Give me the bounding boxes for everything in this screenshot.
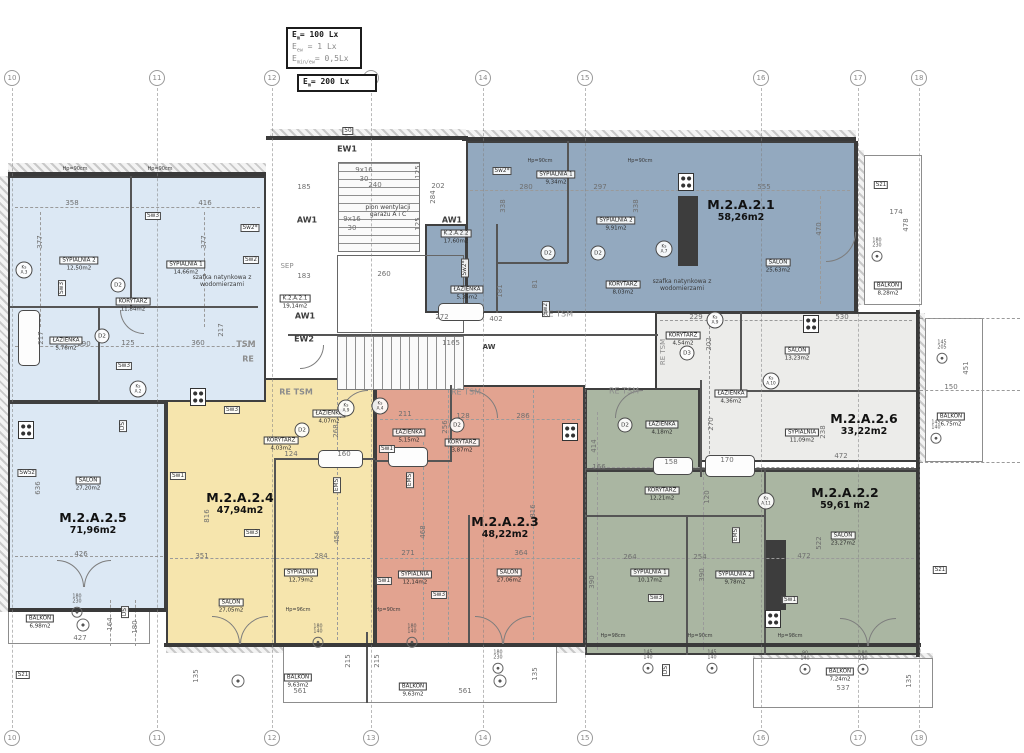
room-area: 27,05m2 xyxy=(219,608,244,614)
room-name: SALON xyxy=(831,532,856,540)
interior-wall xyxy=(498,262,568,264)
room-label: ŁAZIENKA5,15m2 xyxy=(392,419,425,444)
room-label: KORYTARZ3,87m2 xyxy=(445,429,480,454)
apartment-title-M.2.A.2.5: M.2.A.2.571,96m2 xyxy=(59,510,126,536)
grid-axis-bubble: 11 xyxy=(149,70,165,86)
apartment-id: M.2.A.2.5 xyxy=(59,510,126,525)
annotation: Hp=90cm xyxy=(147,167,172,173)
dim-label: 202 xyxy=(705,337,713,350)
dim-label: 522 xyxy=(815,536,823,549)
dash-line xyxy=(380,558,580,559)
apartment-id: M.2.A.2.4 xyxy=(206,490,273,505)
apartment-title-M.2.A.2.1: M.2.A.2.158,26m2 xyxy=(707,197,774,223)
fixture-stamp-Sw1: Sw1 xyxy=(379,445,395,453)
balcony-name: BALKON xyxy=(937,413,965,421)
dim-label: 181 xyxy=(496,284,504,297)
apartment-area: 33,22m2 xyxy=(830,426,897,437)
room-area: 11,84m2 xyxy=(116,307,151,313)
balcony-label: BALKON6,75m2 xyxy=(937,403,965,428)
dim-label: 390 xyxy=(588,575,596,588)
vent-stamp-ref: A.10 xyxy=(766,381,775,385)
fixture-stamp-DS: DS xyxy=(119,420,127,432)
room-label: SALON23,27m2 xyxy=(831,522,856,547)
room-name: ŁAZIENKA xyxy=(49,337,82,345)
wall xyxy=(266,136,468,140)
room-area: 3,87m2 xyxy=(445,448,480,454)
room-name: SYPIALNIA xyxy=(785,429,819,437)
staircase-label: K.2.A.2.119,14m2 xyxy=(280,285,311,310)
apartment-area: 71,96m2 xyxy=(59,525,126,536)
dim-label: 537 xyxy=(836,684,849,692)
balcony-area: 8,28m2 xyxy=(874,291,902,297)
grid-axis-bubble: 15 xyxy=(577,70,593,86)
survey-point-icon xyxy=(494,675,507,688)
room-name: ŁAZIENKA xyxy=(450,286,483,294)
survey-point-icon xyxy=(313,636,324,647)
floor-plan-drawing: Em= 100 Lx Eew = 1 Lx Emin/ew= 0,5Lx Em=… xyxy=(0,0,1024,753)
fixture-stamp-50: 50 xyxy=(342,127,353,135)
annotation: szafka natynkowa z wodomierzami xyxy=(653,279,712,293)
annotation: szafka natynkowa z wodomierzami xyxy=(193,275,252,289)
room-name: SYPIALNIA 2 xyxy=(715,571,754,579)
dim-label: 377 xyxy=(200,235,208,248)
dim-label: 150 xyxy=(944,383,957,391)
annotation: AW1 xyxy=(442,215,462,224)
annotation: RE TSM xyxy=(543,309,573,318)
room-label: SYPIALNIA 114,66m2 xyxy=(166,251,205,276)
balcony-label: BALKON6,98m2 xyxy=(26,605,54,630)
dim-label: 297 xyxy=(593,183,606,191)
apartment-area: 47,94m2 xyxy=(206,505,273,516)
balcony-area: 7,24m2 xyxy=(826,677,854,683)
room-area: 4,18m2 xyxy=(645,430,678,436)
balcony-area: 9,63m2 xyxy=(399,692,427,698)
room-area: 10,17m2 xyxy=(630,578,669,584)
dash-line xyxy=(40,212,41,327)
dim-label: 215 xyxy=(344,654,352,667)
annotation: pion wentylacji garażu A i C xyxy=(365,205,410,219)
dash-line xyxy=(820,196,821,304)
dim-label: 135 xyxy=(531,667,539,680)
room-label: KORYTARZ4,54m2 xyxy=(666,322,701,347)
dim-label: 211 xyxy=(398,410,411,418)
survey-point-icon xyxy=(72,606,83,617)
fixture-stamp-Sw3: Sw3 xyxy=(224,406,240,414)
window-stamp: 180230 xyxy=(872,239,883,262)
room-area: 4,03m2 xyxy=(264,446,299,452)
fixture-stamp-Sw3: Sw3 xyxy=(116,362,132,370)
dim-label: 286 xyxy=(516,412,529,420)
fixture-stamp-Sw2: Sw2 xyxy=(243,256,259,264)
fixture-stamp-Sw2*: Sw2* xyxy=(492,167,511,175)
annotation: EW2 xyxy=(294,334,314,343)
annotation: Hp=90cm xyxy=(375,608,400,614)
room-area: 27,20m2 xyxy=(76,486,101,492)
dim-label: 358 xyxy=(65,199,78,207)
room-label: ŁAZIENKA5,35m2 xyxy=(450,276,483,301)
survey-point-icon xyxy=(858,663,869,674)
dim-label: 280 xyxy=(519,183,532,191)
window-stamp: 145140 xyxy=(707,651,718,674)
dim-label: 30 xyxy=(348,224,357,232)
room-area: 12,14m2 xyxy=(398,580,432,586)
room-name: KORYTARZ xyxy=(445,439,480,447)
annotation: EW1 xyxy=(337,144,357,153)
dim-label: 451 xyxy=(962,361,970,374)
apartment-id: M.2.A.2.3 xyxy=(471,514,538,529)
dim-label: 81 xyxy=(531,280,539,289)
vent-stamp-ref: A.7 xyxy=(661,249,668,253)
room-name: KORYTARZ xyxy=(666,332,701,340)
room-name: SALON xyxy=(785,347,810,355)
dim-label: 30 xyxy=(360,175,369,183)
vent-stamp: KsA.3 xyxy=(16,262,33,279)
interior-wall xyxy=(274,458,276,647)
room-name: SALON xyxy=(497,569,522,577)
interior-wall xyxy=(98,308,100,402)
grid-axis-bubble: 11 xyxy=(149,730,165,746)
balcony-label: BALKON8,28m2 xyxy=(874,272,902,297)
dim-label: 180 xyxy=(131,620,139,633)
staircase-area: 19,14m2 xyxy=(280,304,311,310)
wall-hatch xyxy=(0,176,8,612)
vent-stamp: KsA.9 xyxy=(338,400,355,417)
survey-point-icon xyxy=(937,352,948,363)
grid-axis-bubble: 10 xyxy=(4,730,20,746)
room-label: SALON13,23m2 xyxy=(785,337,810,362)
room-label: SYPIALNIA 29,91m2 xyxy=(596,207,635,232)
staircase-area: 17,60m2 xyxy=(441,239,472,245)
dim-label: 414 xyxy=(590,439,598,452)
annotation: AW1 xyxy=(297,215,317,224)
grid-axis-bubble: 14 xyxy=(475,70,491,86)
grid-axis-bubble: 10 xyxy=(4,70,20,86)
legend-row-2: Eew = 1 Lx xyxy=(292,42,356,54)
fixture-stamp-EMS: EMS xyxy=(732,527,740,543)
dash-line xyxy=(920,318,1020,319)
annotation: RE TSM xyxy=(609,386,639,395)
vent-stamp-ref: A.9 xyxy=(343,408,350,412)
room-label: ŁAZIENKA5,76m2 xyxy=(49,327,82,352)
room-name: ŁAZIENKA xyxy=(645,421,678,429)
fixture-stamp-Sw3: Sw3 xyxy=(145,212,161,220)
grid-axis-bubble: 17 xyxy=(850,730,866,746)
dim-label: 268 xyxy=(332,424,340,437)
fixture-stamp-Sw2*: Sw2* xyxy=(240,224,259,232)
dash-line xyxy=(920,390,1020,391)
dim-label: 426 xyxy=(74,550,87,558)
dim-label: 377 xyxy=(36,235,44,248)
fixture-stamp-EMS: EMS xyxy=(333,477,341,493)
dim-label: 555 xyxy=(757,183,770,191)
apartment-title-M.2.A.2.6: M.2.A.2.633,22m2 xyxy=(830,411,897,437)
room-name: SALON xyxy=(219,599,244,607)
fixture-stamp-EMS: EMS xyxy=(406,472,414,488)
dim-label: 174 xyxy=(889,208,902,216)
window-stamp: 145205 xyxy=(937,341,948,364)
annotation: RE xyxy=(242,354,254,363)
balcony-area: 6,75m2 xyxy=(937,422,965,428)
window-stamp: 180230 xyxy=(72,595,83,618)
dim-label: 229 xyxy=(689,313,702,321)
dim-label: 1165 xyxy=(442,339,460,347)
room-name: SYPIALNIA 1 xyxy=(630,569,669,577)
grid-axis-bubble: 18 xyxy=(911,70,927,86)
room-label: SYPIALNIA 212,50m2 xyxy=(59,247,98,272)
door-stamp-D2: D2 xyxy=(450,418,465,433)
balcony-name: BALKON xyxy=(284,674,312,682)
window-height: 230 xyxy=(493,656,504,661)
apartment-id: M.2.A.2.2 xyxy=(811,485,878,500)
dim-label: 217 xyxy=(217,323,225,336)
fixture-stamp-Sw1: Sw1 xyxy=(782,596,798,604)
annotation: Hp=98cm xyxy=(600,634,625,640)
dim-label: 270 xyxy=(707,417,715,430)
apartment-id: M.2.A.2.6 xyxy=(830,411,897,426)
fixture-stamp-Sw3: Sw3 xyxy=(58,280,66,296)
room-area: 4,07m2 xyxy=(312,419,345,425)
room-area: 9,34m2 xyxy=(536,180,575,186)
dash-line xyxy=(15,556,163,557)
door-arc xyxy=(300,345,324,369)
balcony-name: BALKON xyxy=(399,683,427,691)
room-label: KORYTARZ8,03m2 xyxy=(606,271,641,296)
vent-stamp-ref: A.11 xyxy=(761,501,770,505)
wall xyxy=(8,172,266,176)
legend-box-interior: Em= 100 Lx Eew = 1 Lx Emin/ew= 0,5Lx xyxy=(286,27,362,69)
grid-axis-bubble: 12 xyxy=(264,70,280,86)
room-name: SYPIALNIA 1 xyxy=(536,171,575,179)
room-area: 12,50m2 xyxy=(59,266,98,272)
dim-label: 364 xyxy=(514,549,527,557)
vent-stamp-ref: A.3 xyxy=(21,270,28,274)
dash-line xyxy=(15,207,260,208)
wall xyxy=(164,643,921,647)
grid-line xyxy=(919,88,920,728)
dim-label: 135 xyxy=(905,674,913,687)
balcony-label: BALKON9,63m2 xyxy=(284,664,312,689)
grid-line xyxy=(272,88,273,728)
stove-icon xyxy=(803,315,819,333)
room-label: SYPIALNIA 29,78m2 xyxy=(715,561,754,586)
room-name: KORYTARZ xyxy=(116,298,151,306)
vent-stamp: KsA.2 xyxy=(130,381,147,398)
room-label: SYPIALNIA12,79m2 xyxy=(284,559,318,584)
window-height: 140 xyxy=(643,656,654,661)
annotation: Hp=90cm xyxy=(627,159,652,165)
dim-label: 456 xyxy=(333,530,341,543)
interior-wall xyxy=(740,390,920,392)
dim-label: 390 xyxy=(698,568,706,581)
dim-label: 185 xyxy=(297,183,310,191)
dim-label: 170 xyxy=(720,456,733,464)
room-name: SYPIALNIA xyxy=(398,571,432,579)
grid-line xyxy=(12,88,13,728)
room-name: ŁAZIENKA xyxy=(714,390,747,398)
stove-icon xyxy=(765,610,781,628)
room-area: 9,91m2 xyxy=(596,226,635,232)
dim-label: 472 xyxy=(834,452,847,460)
window-stamp: 180140 xyxy=(313,625,324,648)
room-area: 5,15m2 xyxy=(392,438,425,444)
legend-row-1: Em= 100 Lx xyxy=(292,30,356,42)
grid-axis-bubble: 15 xyxy=(577,730,593,746)
annotation: Hp=90cm xyxy=(687,634,712,640)
window-stamp: 145140 xyxy=(643,651,654,674)
interior-wall xyxy=(130,176,132,306)
staircase-id: K.2.A.2.2 xyxy=(441,230,472,238)
door-stamp-D2: D2 xyxy=(111,278,126,293)
dim-label: 240 xyxy=(368,181,381,189)
legend-row-4: Em= 200 Lx xyxy=(303,77,371,89)
grid-axis-bubble: 16 xyxy=(753,730,769,746)
room-label: SYPIALNIA11,09m2 xyxy=(785,419,819,444)
fixture-stamp-Sw2*: Sw2* xyxy=(461,258,469,277)
vent-stamp-ref: A.9 xyxy=(712,320,719,324)
room-area: 12,21m2 xyxy=(645,496,680,502)
dash-line xyxy=(423,442,424,640)
balcony-name: BALKON xyxy=(26,615,54,623)
apartment-title-M.2.A.2.2: M.2.A.2.259,61 m2 xyxy=(811,485,878,511)
room-name: SYPIALNIA xyxy=(284,569,318,577)
door-stamp-D3: D3 xyxy=(680,346,695,361)
survey-point-icon xyxy=(77,619,90,632)
interior-wall xyxy=(288,334,658,336)
door-stamp-D2: D2 xyxy=(295,423,310,438)
dim-label: 260 xyxy=(377,270,390,278)
room-name: SYPIALNIA 2 xyxy=(59,257,98,265)
dim-label: 478 xyxy=(902,218,910,231)
fixture-stamp-Sw3: Sw3 xyxy=(244,529,260,537)
dim-label: 271 xyxy=(401,549,414,557)
annotation: Hp=90cm xyxy=(62,167,87,173)
room-area: 4,36m2 xyxy=(714,399,747,405)
survey-point-icon xyxy=(493,662,504,673)
window-height: 140 xyxy=(313,630,324,635)
annotation: Hp=96cm xyxy=(285,608,310,614)
room-area: 8,03m2 xyxy=(606,290,641,296)
fixture-stamp-Sz1: Sz1 xyxy=(933,566,947,574)
window-height: 230 xyxy=(858,657,869,662)
grid-axis-bubble: 12 xyxy=(264,730,280,746)
interior-wall xyxy=(468,515,470,647)
vent-stamp: KsA.9 xyxy=(707,312,724,329)
dim-label: 125 xyxy=(414,217,422,230)
dim-label: 284 xyxy=(429,190,437,203)
room-name: SYPIALNIA 1 xyxy=(166,261,205,269)
survey-point-icon xyxy=(232,675,245,688)
fixture-stamp-Sz1: Sz1 xyxy=(874,181,888,189)
dim-label: 238 xyxy=(819,425,827,438)
grid-line xyxy=(585,88,586,728)
dim-label: 135 xyxy=(192,669,200,682)
room-name: SYPIALNIA 2 xyxy=(596,217,635,225)
room-label: SALON27,06m2 xyxy=(497,559,522,584)
stove-icon xyxy=(18,421,34,439)
dim-label: 166 xyxy=(592,463,605,471)
dim-label: 402 xyxy=(489,315,502,323)
room-area: 11,09m2 xyxy=(785,438,819,444)
dim-label: 9x16 xyxy=(343,215,361,223)
legend-box-exterior: Em= 200 Lx xyxy=(297,74,377,92)
vent-stamp: KsA.11 xyxy=(758,493,775,510)
room-label: SALON27,05m2 xyxy=(219,589,244,614)
balcony-label: BALKON9,63m2 xyxy=(399,673,427,698)
fixture-stamp-Sw3: Sw3 xyxy=(648,594,664,602)
dim-label: 183 xyxy=(297,272,310,280)
window-stamp: 180140 xyxy=(407,625,418,648)
staircase-id: K.2.A.2.1 xyxy=(280,295,311,303)
dim-label: 530 xyxy=(835,313,848,321)
annotation: SEP xyxy=(280,262,293,270)
room-name: KORYTARZ xyxy=(264,437,299,445)
grid-axis-bubble: 16 xyxy=(753,70,769,86)
grid-axis-bubble: 17 xyxy=(850,70,866,86)
survey-point-icon xyxy=(643,662,654,673)
dim-label: 468 xyxy=(419,525,427,538)
survey-point-icon xyxy=(707,662,718,673)
grid-line xyxy=(157,88,158,728)
room-area: 12,79m2 xyxy=(284,578,318,584)
balcony-area: 6,98m2 xyxy=(26,624,54,630)
interior-wall xyxy=(700,380,702,477)
annotation: RE TSM xyxy=(279,387,313,396)
balcony-area: 9,63m2 xyxy=(284,683,312,689)
stove-icon xyxy=(678,173,694,191)
window-stamp: 180230 xyxy=(858,652,869,675)
dim-label: 416 xyxy=(198,199,211,207)
room-label: ŁAZIENKA4,18m2 xyxy=(645,411,678,436)
annotation: AW1 xyxy=(295,311,315,320)
room-name: SALON xyxy=(76,477,101,485)
window-height: 230 xyxy=(872,244,883,249)
window-height: 205 xyxy=(937,346,948,351)
room-area: 9,78m2 xyxy=(715,580,754,586)
dim-label: 120 xyxy=(703,490,711,503)
grid-line xyxy=(858,88,859,728)
window-height: 230 xyxy=(72,600,83,605)
dim-label: 360 xyxy=(191,339,204,347)
survey-point-icon xyxy=(407,636,418,647)
interior-wall xyxy=(585,515,765,517)
balcony-name: BALKON xyxy=(874,282,902,290)
room-label: SALON25,63m2 xyxy=(766,249,791,274)
room-label: SYPIALNIA12,14m2 xyxy=(398,561,432,586)
room-area: 13,23m2 xyxy=(785,356,810,362)
door-stamp-D2: D2 xyxy=(95,329,110,344)
elevator-core xyxy=(337,255,464,333)
window-stamp: 180230 xyxy=(493,651,504,674)
apartment-title-M.2.A.2.3: M.2.A.2.348,22m2 xyxy=(471,514,538,540)
room-label: SYPIALNIA 110,17m2 xyxy=(630,559,669,584)
grid-axis-bubble: 14 xyxy=(475,730,491,746)
apartment-id: M.2.A.2.1 xyxy=(707,197,774,212)
dim-label: 254 xyxy=(693,553,706,561)
survey-point-icon xyxy=(872,250,883,261)
grid-axis-bubble: 13 xyxy=(363,730,379,746)
fixture-stamp-DS: DS xyxy=(662,664,670,676)
door-stamp-D2: D2 xyxy=(591,246,606,261)
fixture-stamp-Sw1: Sw1 xyxy=(376,577,392,585)
grid-line xyxy=(483,88,484,728)
door-stamp-D2: D2 xyxy=(618,418,633,433)
room-area: 5,76m2 xyxy=(49,346,82,352)
annotation: RE TSM xyxy=(659,339,667,365)
wall xyxy=(462,137,856,141)
fixture-stamp-Sz1: Sz1 xyxy=(16,671,30,679)
apartment-area: 58,26m2 xyxy=(707,212,774,223)
legend-row-3: Emin/ew= 0,5Lx xyxy=(292,54,356,66)
